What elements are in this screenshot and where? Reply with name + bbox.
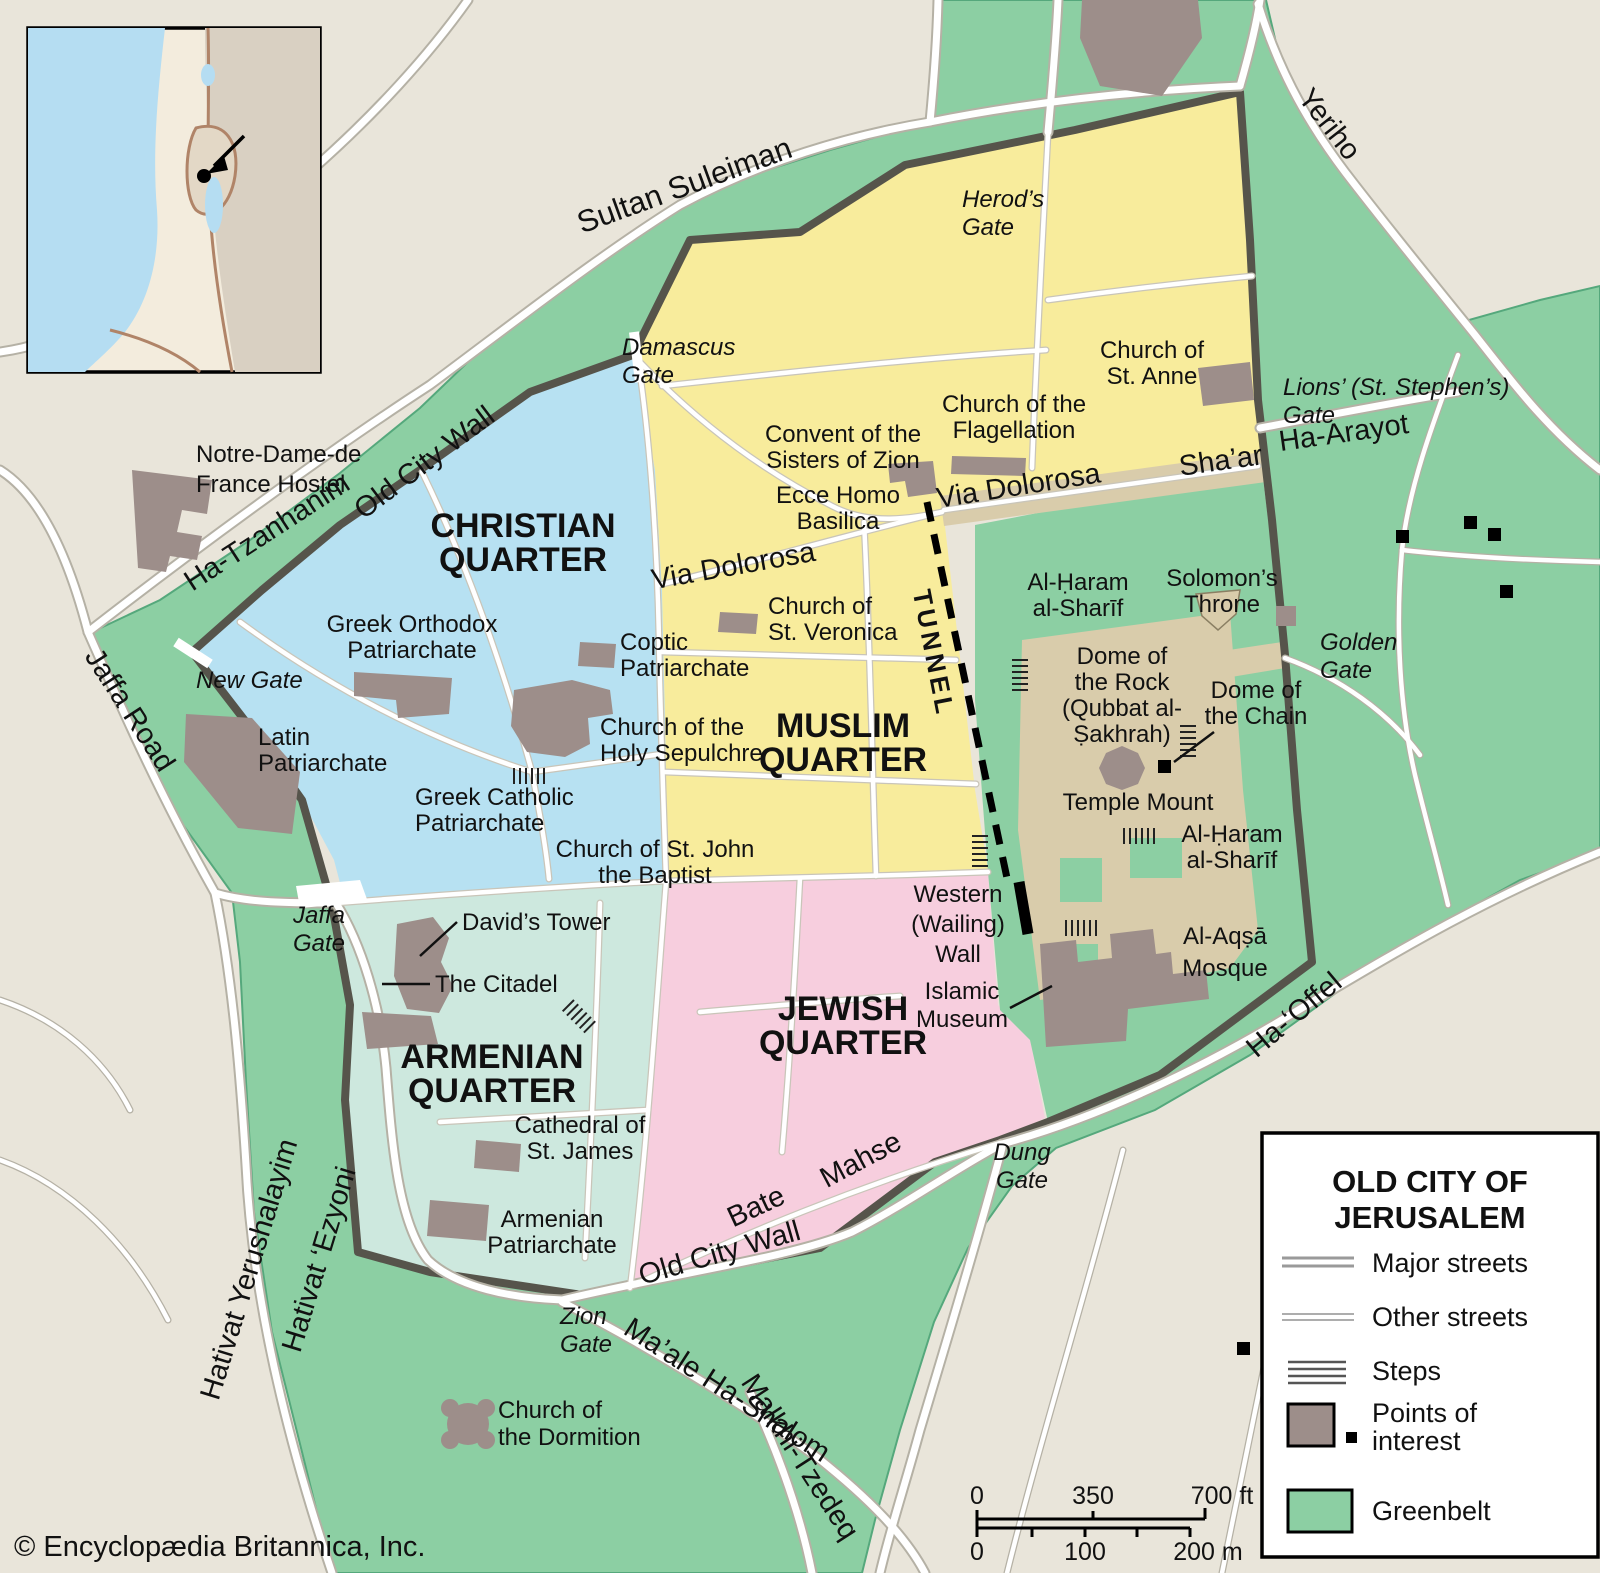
armenian-quarter-label: ARMENIAN (400, 1038, 583, 1076)
western-wall-label: Western (914, 881, 1003, 908)
dome-rock-label: Dome of (1077, 643, 1168, 670)
sisters-zion-label: Sisters of Zion (766, 447, 919, 474)
poi-square-icon (1237, 1342, 1250, 1355)
dormition-label: the Dormition (498, 1424, 641, 1451)
poi-square-icon (1500, 585, 1513, 598)
notre-dame-label: France Hostel (196, 471, 345, 498)
haram-south-label: al-Sharīf (1187, 847, 1278, 874)
ecce-homo-label: Ecce Homo (776, 482, 900, 509)
damascus-gate-label: Damascus (622, 334, 735, 361)
inset-dead-sea (205, 177, 223, 233)
jaffa-gate-label: Gate (293, 930, 345, 957)
poi-square-icon (1488, 528, 1501, 541)
muslim-quarter-label: QUARTER (759, 741, 927, 779)
haram-north-label: Al-Ḥaram (1027, 569, 1128, 596)
dung-gate-label: Dung (993, 1139, 1051, 1166)
building (1276, 606, 1296, 626)
jerusalem-old-city-map: Sultan Suleiman Yeriho Old City Wall Ha-… (0, 0, 1600, 1573)
haram-north-label: al-Sharīf (1033, 595, 1124, 622)
christian-quarter-label: CHRISTIAN (430, 507, 615, 545)
flagellation-label: Flagellation (953, 417, 1076, 444)
herods-gate-label: Herod’s (962, 186, 1044, 213)
legend-points-of-interest: interest (1372, 1426, 1461, 1456)
ecce-homo-label: Basilica (797, 508, 880, 535)
platform-green-pocket (1060, 858, 1102, 902)
greek-orthodox-label: Greek Orthodox (327, 611, 498, 638)
st-james-label: Cathedral of (515, 1112, 646, 1139)
armenian-patriarchate-building (427, 1200, 489, 1241)
damascus-gate-label: Gate (622, 362, 674, 389)
st-anne-building (1198, 362, 1254, 406)
citadel-label: The Citadel (435, 971, 558, 998)
dormition-label: Church of (498, 1397, 602, 1424)
poi-square-icon (1396, 530, 1409, 543)
st-james-label: St. James (527, 1138, 634, 1165)
legend-major-streets: Major streets (1372, 1248, 1528, 1278)
notre-dame-label: Notre-Dame-de (196, 441, 361, 468)
new-gate-label: New Gate (196, 667, 303, 694)
dome-rock-label: Ṣakhrah) (1073, 721, 1170, 748)
inset-lake (201, 64, 215, 86)
greek-catholic-label: Greek Catholic (415, 784, 574, 811)
copyright-notice: © Encyclopædia Britannica, Inc. (14, 1531, 425, 1563)
coptic-label: Patriarchate (620, 655, 749, 682)
st-veronica-label: Church of (768, 593, 872, 620)
scale-label: 200 m (1173, 1538, 1242, 1566)
western-wall-label: Wall (935, 941, 981, 968)
dormition-building (477, 1431, 495, 1449)
greek-catholic-label: Patriarchate (415, 810, 544, 837)
dome-rock-label: the Rock (1075, 669, 1171, 696)
legend-other-streets: Other streets (1372, 1302, 1528, 1332)
coptic-building (578, 642, 616, 668)
st-veronica-label: St. Veronica (768, 619, 898, 646)
armenian-quarter-label: QUARTER (408, 1072, 576, 1110)
scale-label: 350 (1072, 1482, 1114, 1510)
legend-steps: Steps (1372, 1356, 1441, 1386)
dome-chain-label: Dome of (1211, 677, 1302, 704)
jewish-quarter-label: QUARTER (759, 1024, 927, 1062)
greek-orthodox-label: Patriarchate (347, 637, 476, 664)
dormition-building (441, 1399, 459, 1417)
legend-greenbelt: Greenbelt (1372, 1496, 1491, 1526)
dome-chain-label: the Chain (1205, 703, 1308, 730)
legend-title: OLD CITY OF (1332, 1164, 1528, 1199)
latin-label: Latin (258, 724, 310, 751)
dung-gate-label: Gate (996, 1167, 1048, 1194)
platform-green-pocket (1130, 838, 1182, 878)
greenbelt-swatch (1288, 1490, 1352, 1532)
zion-gate-label: Gate (560, 1331, 612, 1358)
st-anne-label: St. Anne (1107, 363, 1198, 390)
herods-gate-label: Gate (962, 214, 1014, 241)
western-wall-label: (Wailing) (911, 911, 1005, 938)
golden-gate-label: Golden (1320, 629, 1397, 656)
legend-points-of-interest: Points of (1372, 1398, 1478, 1428)
scale-label: 100 (1064, 1538, 1106, 1566)
holy-sepulchre-label: Church of the (600, 714, 744, 741)
sisters-zion-label: Convent of the (765, 421, 921, 448)
scale-label: 0 (970, 1482, 984, 1510)
solomons-throne-label: Solomon’s (1166, 565, 1278, 592)
st-james-building (474, 1140, 521, 1172)
muslim-quarter-label: MUSLIM (776, 707, 910, 745)
legend: OLD CITY OF JERUSALEM Major streets Othe… (1262, 1133, 1598, 1557)
temple-mount-label: Temple Mount (1063, 789, 1214, 816)
legend-title: JERUSALEM (1334, 1200, 1525, 1235)
scale-label: 0 (970, 1538, 984, 1566)
dormition-building (441, 1431, 459, 1449)
dome-chain-square-icon (1158, 760, 1171, 773)
christian-quarter-label: QUARTER (439, 541, 607, 579)
lions-gate-label: Gate (1283, 402, 1335, 429)
islamic-museum-label: Islamic (925, 978, 1000, 1005)
jaffa-gate-label: Jaffa (292, 902, 345, 929)
holy-sepulchre-label: Holy Sepulchre (600, 740, 763, 767)
st-veronica-building (718, 612, 758, 634)
st-anne-label: Church of (1100, 337, 1204, 364)
haram-south-label: Al-Ḥaram (1181, 821, 1282, 848)
zion-gate-label: Zion (559, 1303, 607, 1330)
davids-tower-label: David’s Tower (462, 909, 611, 936)
poi-swatch-square (1346, 1432, 1357, 1443)
armenian-patriarchate-label: Patriarchate (487, 1232, 616, 1259)
solomons-throne-label: Throne (1184, 591, 1260, 618)
latin-label: Patriarchate (258, 750, 387, 777)
lions-gate-label: Lions’ (St. Stephen’s) (1283, 374, 1509, 401)
dormition-building (477, 1399, 495, 1417)
st-john-label: Church of St. John (556, 836, 755, 863)
dome-rock-label: (Qubbat al- (1062, 695, 1182, 722)
al-aqsa-label: Mosque (1182, 955, 1267, 982)
islamic-museum-label: Museum (916, 1006, 1008, 1033)
al-aqsa-label: Al-Aqṣā (1183, 923, 1268, 950)
st-john-label: the Baptist (598, 862, 712, 889)
flagellation-label: Church of the (942, 391, 1086, 418)
armenian-patriarchate-label: Armenian (501, 1206, 604, 1233)
jewish-quarter-label: JEWISH (778, 990, 908, 1028)
inset-map (28, 28, 320, 372)
poi-square-icon (1464, 516, 1477, 529)
map-page: Sultan Suleiman Yeriho Old City Wall Ha-… (0, 0, 1600, 1573)
golden-gate-label: Gate (1320, 657, 1372, 684)
poi-swatch (1288, 1404, 1334, 1446)
coptic-label: Coptic (620, 629, 688, 656)
scale-label: 700 ft (1191, 1482, 1254, 1510)
